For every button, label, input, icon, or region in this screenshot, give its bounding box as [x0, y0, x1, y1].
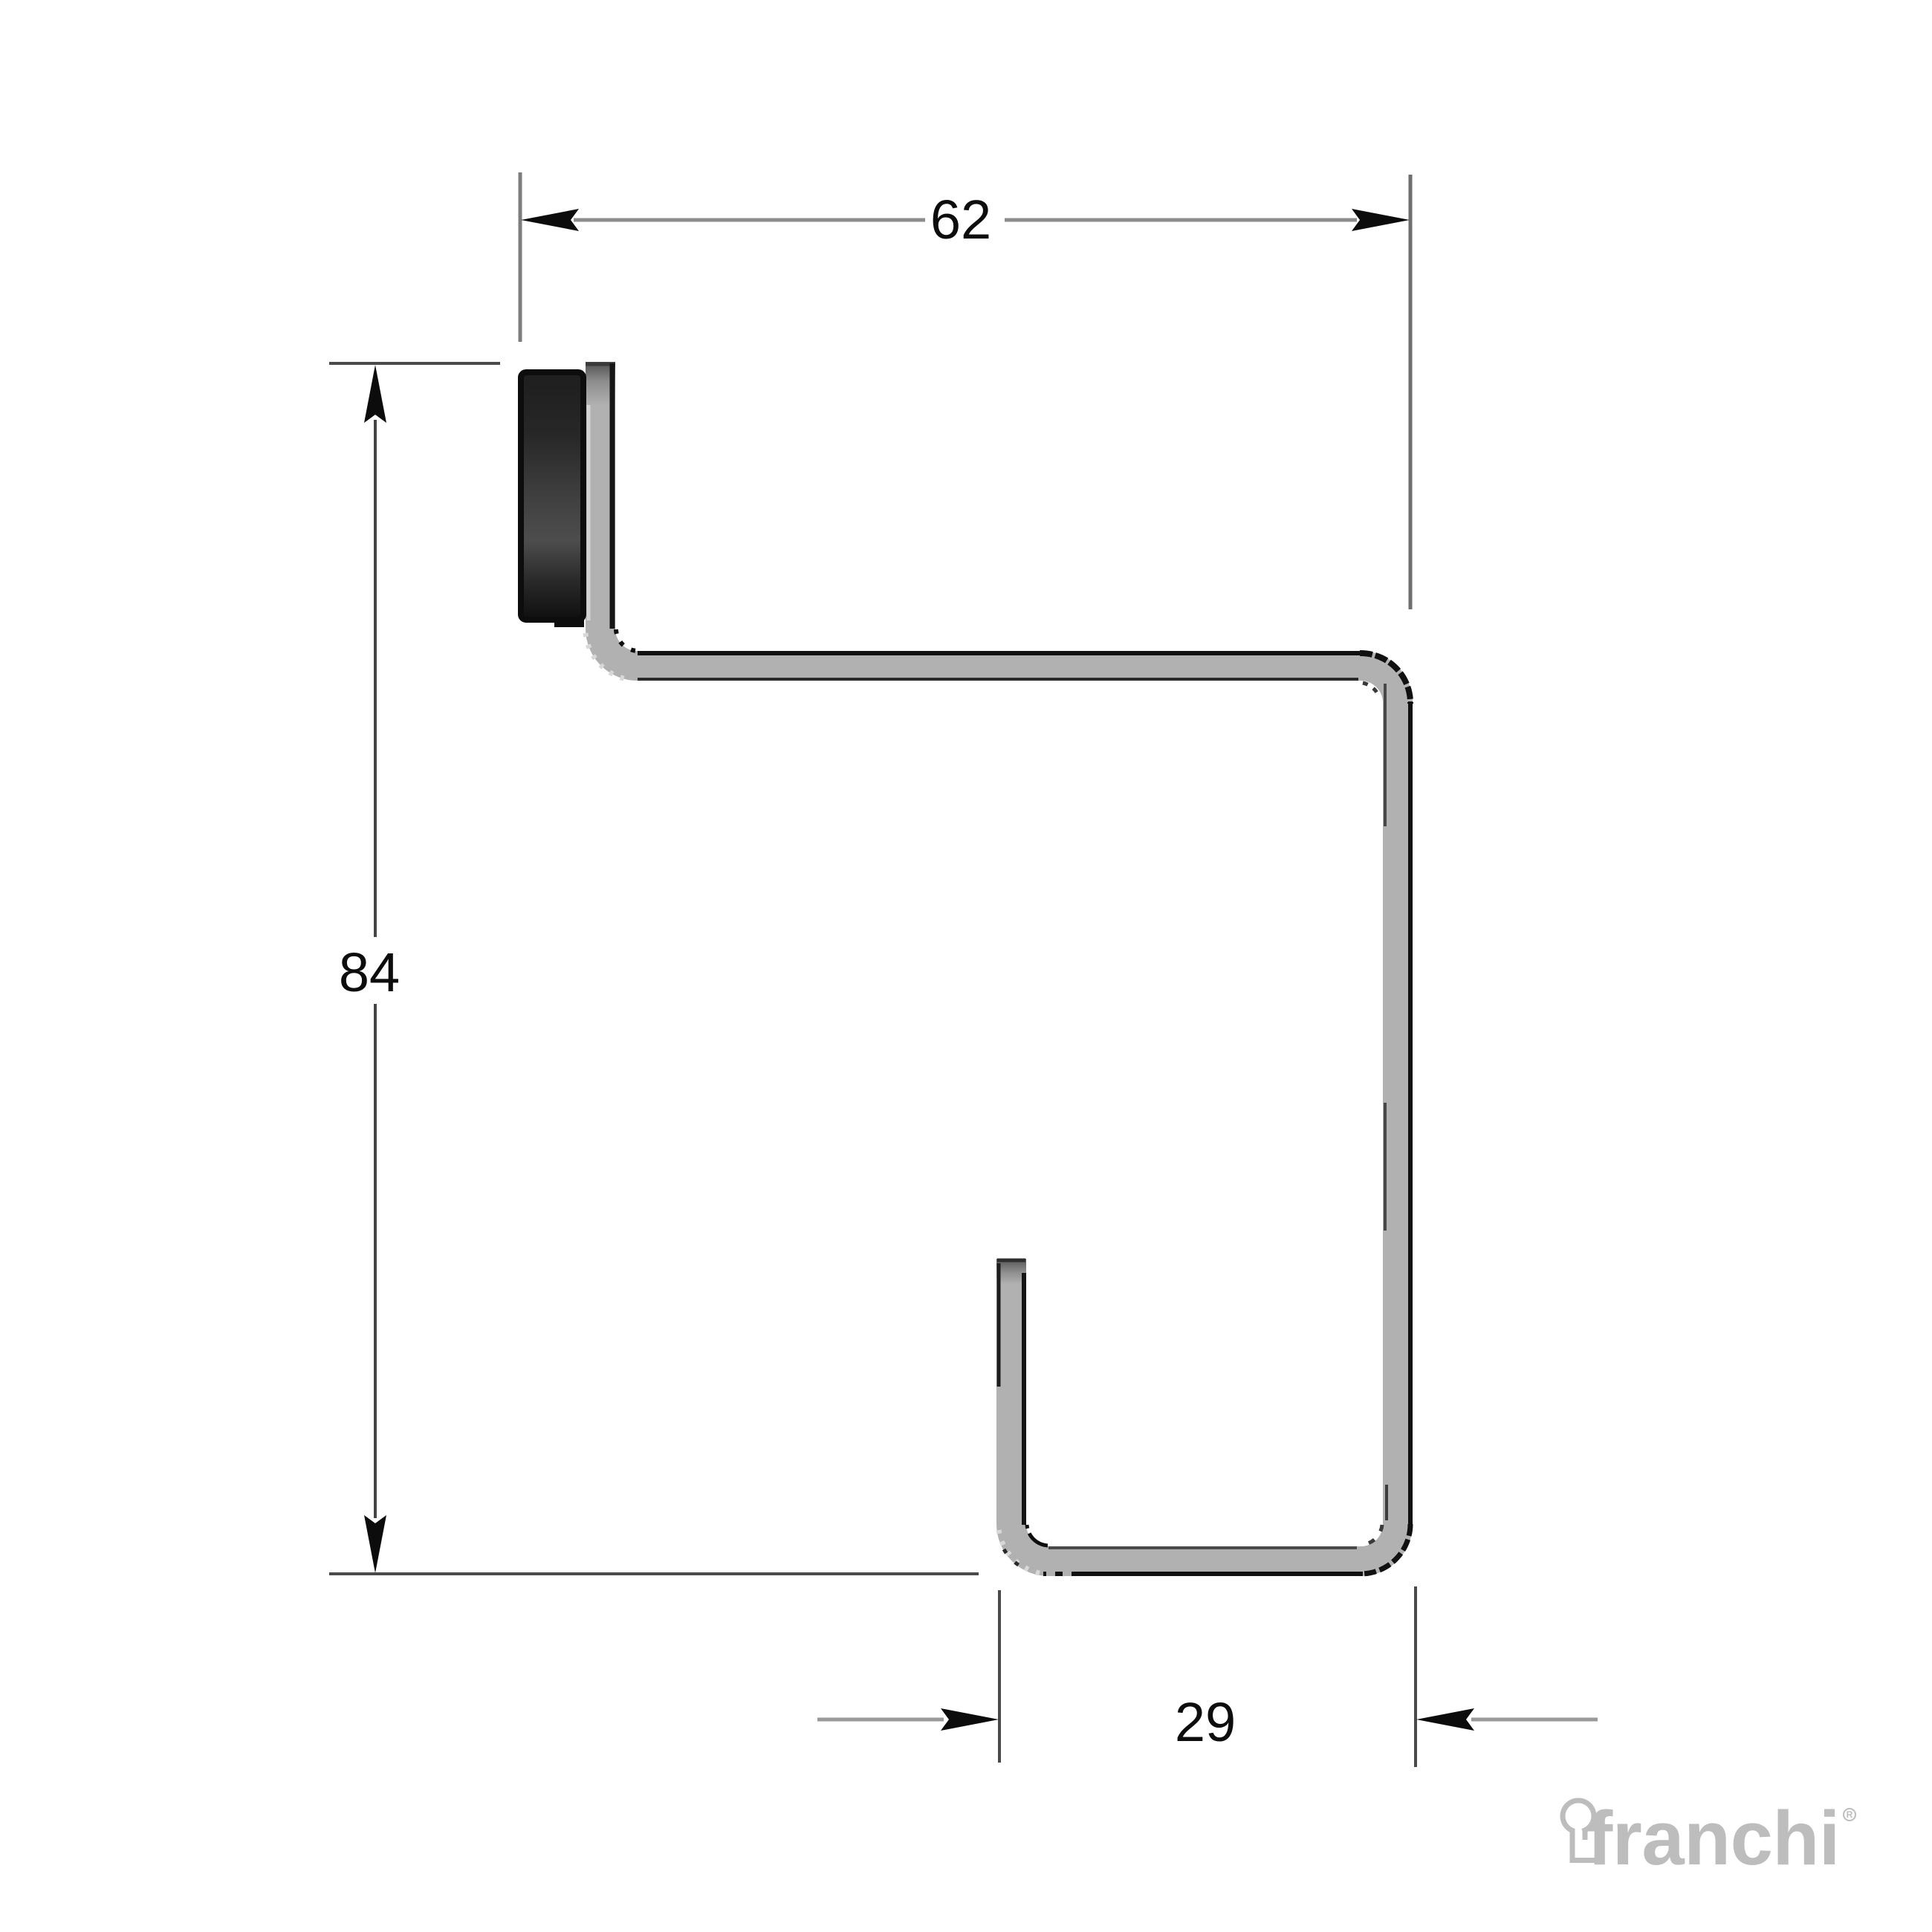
svg-text:84: 84 [339, 941, 400, 1003]
svg-text:29: 29 [1175, 1691, 1236, 1753]
svg-text:R: R [1847, 1809, 1853, 1820]
svg-text:62: 62 [930, 189, 991, 250]
svg-text:franchi: franchi [1587, 1795, 1840, 1881]
